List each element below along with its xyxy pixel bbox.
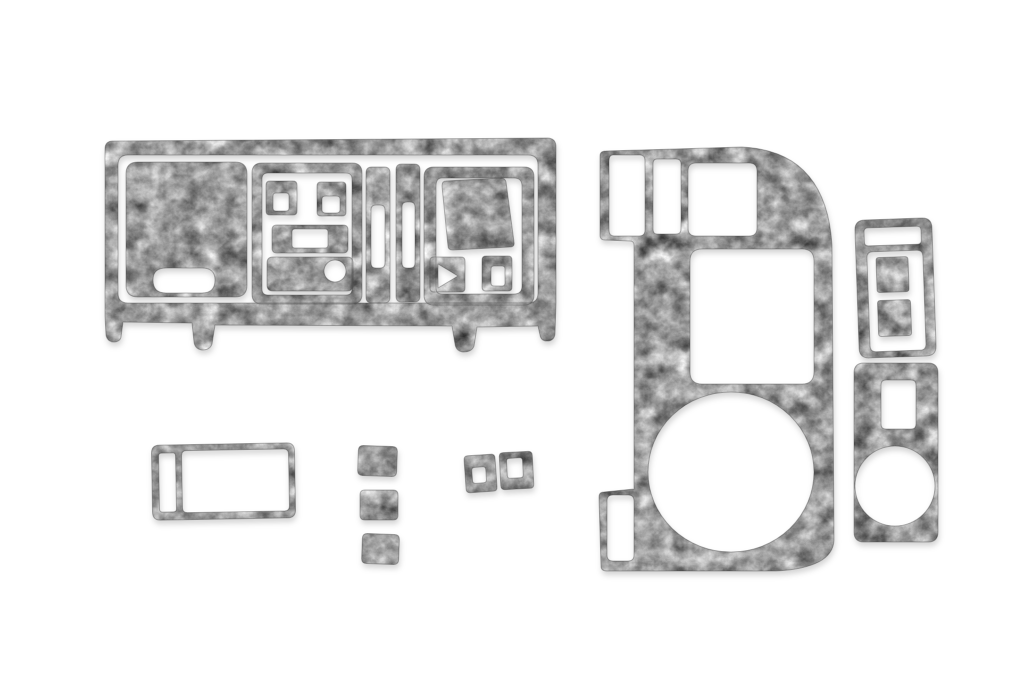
- photo-background: [0, 0, 1024, 681]
- square-trim-2: [360, 490, 398, 520]
- trim-kit-photo: [0, 0, 1024, 681]
- square-trim-3: [361, 533, 399, 564]
- switch-insert-upper: [876, 257, 909, 293]
- gear-indicator-trim: [442, 178, 514, 250]
- square-trim-1: [357, 445, 397, 476]
- switch-insert-lower: [877, 299, 911, 336]
- photo-stage: [0, 0, 1024, 681]
